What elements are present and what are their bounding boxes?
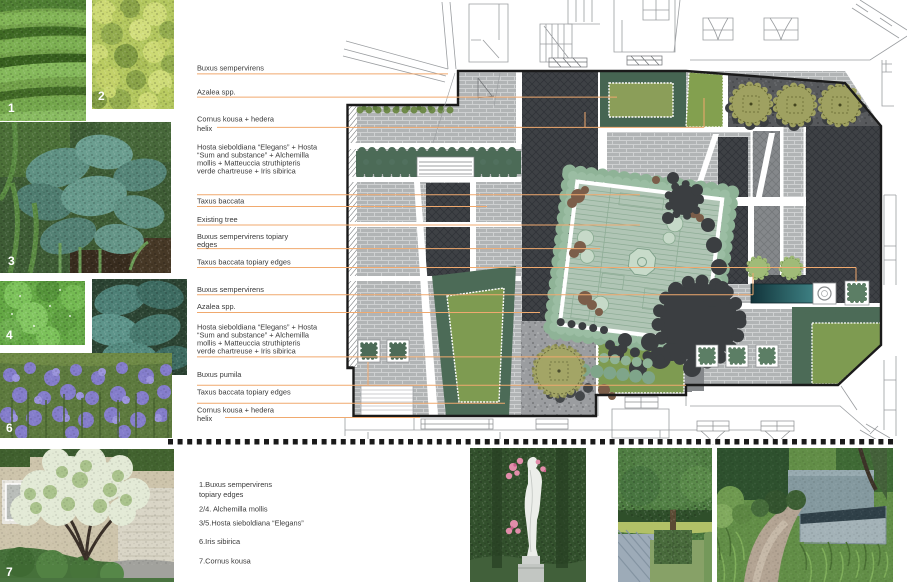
svg-text:Taxus baccata: Taxus baccata bbox=[197, 197, 245, 206]
svg-text:Buxus sempervirens: Buxus sempervirens bbox=[197, 285, 264, 294]
svg-text:1.Buxus sempervirens: 1.Buxus sempervirens bbox=[199, 480, 272, 489]
svg-text:7: 7 bbox=[6, 565, 13, 579]
svg-text:Cornus kousa + hedera: Cornus kousa + hedera bbox=[197, 115, 275, 124]
svg-text:6: 6 bbox=[6, 421, 13, 435]
svg-text:6.Iris sibirica: 6.Iris sibirica bbox=[199, 537, 241, 546]
svg-text:Azalea spp.: Azalea spp. bbox=[197, 302, 236, 311]
svg-text:3/5.Hosta sieboldiana “Elegans: 3/5.Hosta sieboldiana “Elegans” bbox=[199, 519, 304, 528]
svg-text:Azalea spp.: Azalea spp. bbox=[197, 88, 236, 97]
svg-text:1: 1 bbox=[8, 101, 15, 115]
svg-text:helix: helix bbox=[197, 124, 213, 133]
svg-text:helix: helix bbox=[197, 414, 213, 423]
svg-text:2/4. Alchemilla mollis: 2/4. Alchemilla mollis bbox=[199, 505, 268, 514]
svg-text:Taxus baccata topiary edges: Taxus baccata topiary edges bbox=[197, 388, 291, 397]
svg-text:7.Cornus kousa: 7.Cornus kousa bbox=[199, 557, 252, 566]
svg-text:topiary edges: topiary edges bbox=[199, 490, 244, 499]
svg-text:verde chartreuse + Iris sibiri: verde chartreuse + Iris sibirica bbox=[197, 347, 297, 356]
svg-text:2: 2 bbox=[98, 89, 105, 103]
svg-text:verde chartreuse + Iris sibiri: verde chartreuse + Iris sibirica bbox=[197, 167, 297, 176]
svg-text:edges: edges bbox=[197, 240, 217, 249]
svg-text:Buxus pumila: Buxus pumila bbox=[197, 370, 242, 379]
svg-text:4: 4 bbox=[6, 328, 13, 342]
svg-text:Buxus sempervirens: Buxus sempervirens bbox=[197, 64, 264, 73]
svg-text:Existing tree: Existing tree bbox=[197, 215, 238, 224]
svg-text:Taxus baccata topiary edges: Taxus baccata topiary edges bbox=[197, 258, 291, 267]
svg-text:3: 3 bbox=[8, 254, 15, 268]
